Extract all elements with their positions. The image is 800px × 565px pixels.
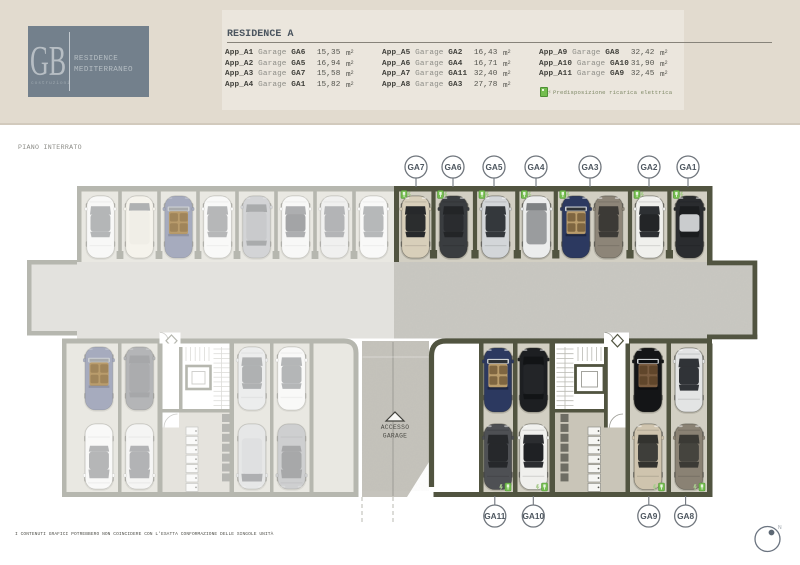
svg-text:GA5: GA5 xyxy=(485,162,502,172)
svg-text:GA10: GA10 xyxy=(522,511,544,521)
svg-text:GA3: GA3 xyxy=(581,162,598,172)
svg-text:GA8: GA8 xyxy=(677,511,694,521)
svg-text:GA9: GA9 xyxy=(640,511,657,521)
svg-text:GARAGE: GARAGE xyxy=(383,433,407,440)
svg-text:GA2: GA2 xyxy=(640,162,657,172)
svg-text:GA7: GA7 xyxy=(407,162,424,172)
svg-text:GA1: GA1 xyxy=(679,162,696,172)
svg-text:GA11: GA11 xyxy=(484,511,506,521)
svg-text:N: N xyxy=(778,525,782,531)
svg-text:GA6: GA6 xyxy=(444,162,461,172)
svg-text:ACCESSO: ACCESSO xyxy=(381,424,410,431)
svg-text:GA4: GA4 xyxy=(527,162,544,172)
